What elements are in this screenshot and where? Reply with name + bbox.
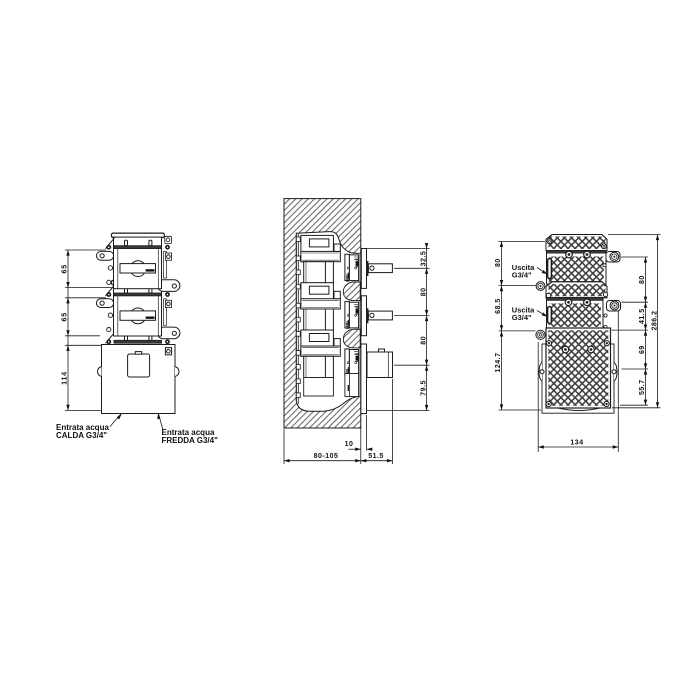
svg-text:114: 114 xyxy=(59,371,68,385)
svg-text:80: 80 xyxy=(495,258,502,267)
svg-text:CALDA G3/4": CALDA G3/4" xyxy=(56,431,107,440)
svg-text:79.5: 79.5 xyxy=(420,380,427,396)
svg-text:MIN: MIN xyxy=(345,274,350,282)
svg-text:51.5: 51.5 xyxy=(368,453,384,460)
svg-text:80-105: 80-105 xyxy=(314,453,339,460)
svg-text:68.5: 68.5 xyxy=(495,298,502,314)
svg-text:80: 80 xyxy=(420,288,427,297)
svg-text:65: 65 xyxy=(59,312,68,321)
svg-text:FREDDA G3/4": FREDDA G3/4" xyxy=(162,436,219,445)
svg-text:32.5: 32.5 xyxy=(420,251,427,267)
svg-text:124.7: 124.7 xyxy=(495,352,502,372)
svg-text:G3/4": G3/4" xyxy=(512,313,532,322)
svg-text:55.7: 55.7 xyxy=(639,379,646,395)
svg-text:69: 69 xyxy=(639,345,646,354)
svg-text:41.5: 41.5 xyxy=(639,308,646,324)
svg-text:134: 134 xyxy=(570,440,583,447)
svg-text:80: 80 xyxy=(639,275,646,284)
svg-text:286.2: 286.2 xyxy=(651,310,658,330)
svg-text:65: 65 xyxy=(59,264,68,273)
svg-text:MAX: MAX xyxy=(354,258,359,268)
svg-text:G3/4": G3/4" xyxy=(512,270,532,279)
svg-text:10: 10 xyxy=(345,441,354,448)
svg-text:80: 80 xyxy=(420,336,427,345)
